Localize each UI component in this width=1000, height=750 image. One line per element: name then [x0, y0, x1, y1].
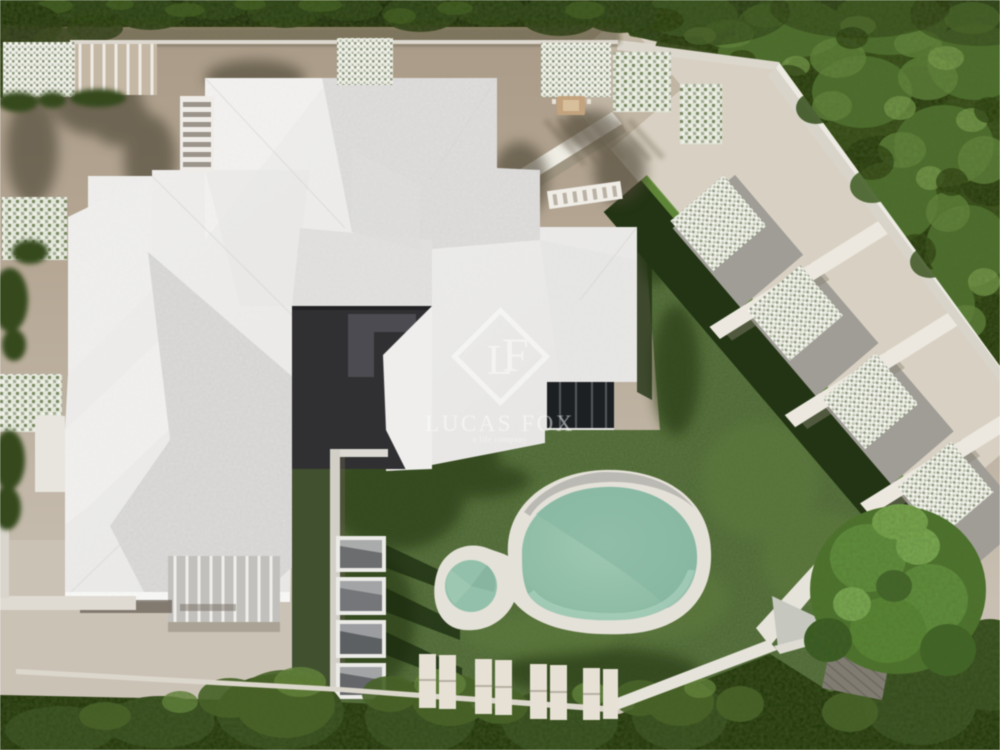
svg-text:LUCAS FOX: LUCAS FOX — [425, 411, 575, 436]
svg-text:a life company: a life company — [473, 435, 528, 444]
svg-text:F: F — [502, 329, 529, 382]
